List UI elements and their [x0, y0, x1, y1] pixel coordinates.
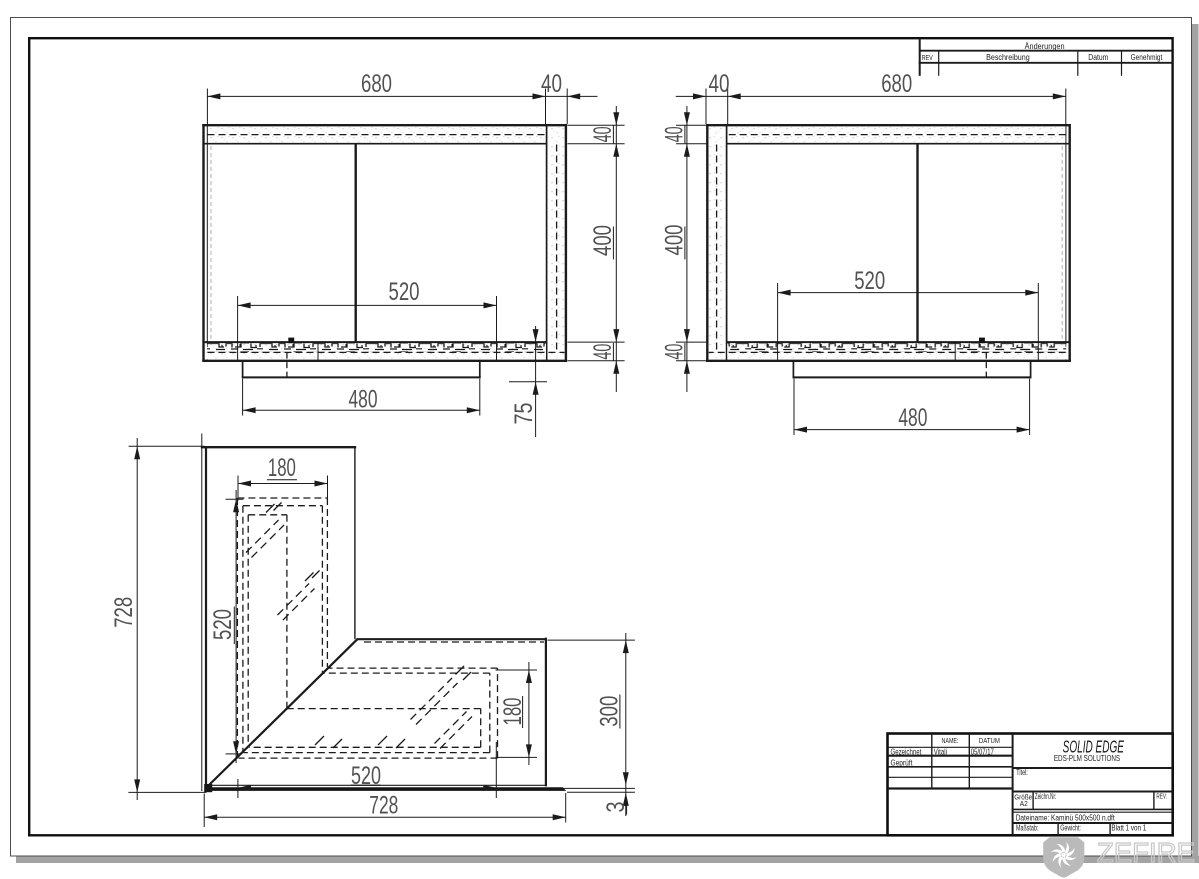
svg-text:Beschreibung: Beschreibung [986, 53, 1030, 62]
svg-text:40: 40 [709, 70, 730, 98]
svg-text:480: 480 [349, 386, 378, 414]
svg-text:Dateiname: Kaminü 500x500 n.df: Dateiname: Kaminü 500x500 n.dft [1016, 814, 1116, 823]
svg-text:ZEFIRE: ZEFIRE [1097, 837, 1195, 868]
svg-text:520: 520 [209, 609, 237, 640]
svg-text:75: 75 [510, 403, 538, 425]
svg-text:480: 480 [898, 404, 927, 432]
svg-text:Titel:: Titel: [1016, 768, 1028, 777]
svg-text:Änderungen: Änderungen [1025, 42, 1065, 51]
svg-text:3: 3 [602, 802, 630, 813]
svg-text:40: 40 [660, 126, 688, 142]
svg-text:A2: A2 [1020, 799, 1028, 808]
svg-text:DATUM: DATUM [979, 736, 1000, 745]
svg-text:680: 680 [881, 70, 912, 98]
svg-text:300: 300 [596, 696, 624, 727]
svg-text:180: 180 [268, 454, 296, 482]
svg-text:EDS-PLM SOLUTIONS: EDS-PLM SOLUTIONS [1054, 754, 1120, 763]
svg-text:520: 520 [389, 278, 420, 306]
svg-text:Blatt 1 von 1: Blatt 1 von 1 [1111, 824, 1146, 833]
svg-text:40: 40 [541, 70, 562, 98]
svg-text:Datum: Datum [1088, 53, 1108, 62]
svg-text:Gezeichnet: Gezeichnet [891, 748, 922, 757]
svg-text:40: 40 [589, 344, 617, 360]
svg-text:728: 728 [369, 792, 398, 820]
svg-text:Zeichn.Nr:: Zeichn.Nr: [1035, 792, 1057, 801]
svg-text:Maßstab:: Maßstab: [1016, 824, 1038, 833]
svg-text:400: 400 [589, 225, 617, 256]
svg-text:400: 400 [660, 225, 688, 256]
svg-text:REV: REV [922, 53, 933, 62]
svg-text:05/07/17: 05/07/17 [971, 748, 994, 757]
svg-text:Geprüft: Geprüft [891, 758, 914, 767]
svg-text:REV.: REV. [1156, 792, 1167, 801]
svg-text:40: 40 [589, 126, 617, 142]
svg-text:520: 520 [351, 762, 381, 790]
svg-text:680: 680 [361, 70, 392, 98]
svg-text:Vitali: Vitali [934, 748, 947, 757]
svg-text:Gewicht:: Gewicht: [1060, 824, 1081, 833]
svg-text:40: 40 [660, 344, 688, 360]
svg-text:728: 728 [110, 597, 138, 628]
svg-text:Genehmigt: Genehmigt [1131, 53, 1163, 62]
svg-text:NAME:: NAME: [942, 736, 959, 745]
svg-text:520: 520 [854, 267, 885, 295]
svg-text:180: 180 [499, 698, 527, 726]
